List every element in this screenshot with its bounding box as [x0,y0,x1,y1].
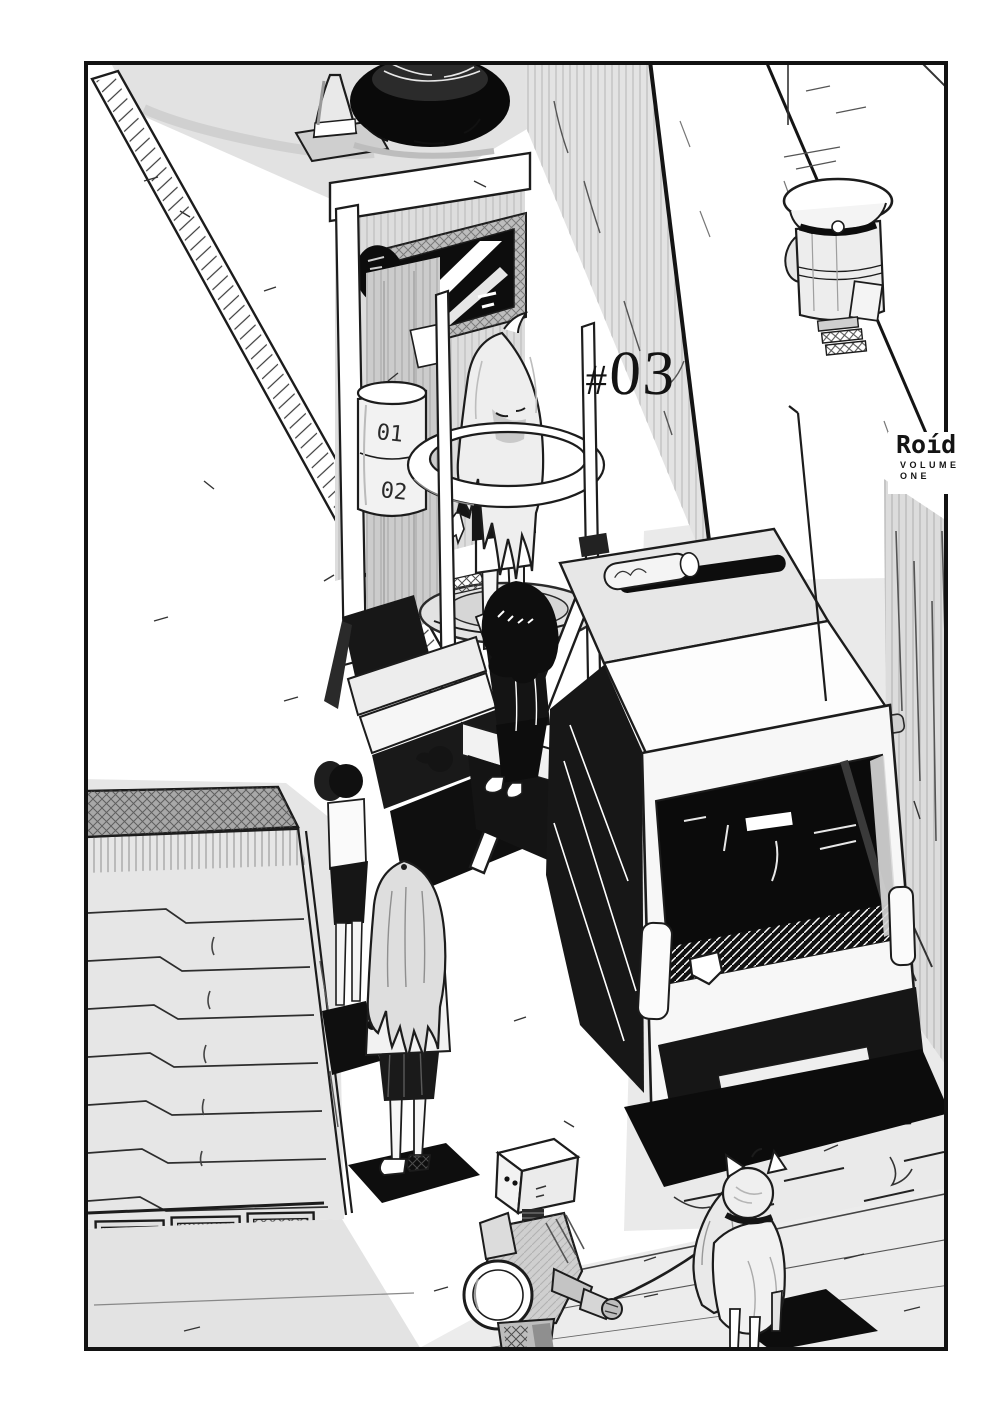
tail-light-left [638,922,673,1019]
barrel-mark-top: 01 [375,420,404,448]
manga-panel: 01 02 [84,61,948,1351]
series-logo-block: Roíd VOLUME ONE [888,432,1000,494]
tail-light-right [889,887,916,966]
chapter-number-digits: 03 [608,338,679,408]
panel-illustration: 01 02 [84,61,948,1351]
volume-word: VOLUME [900,460,1000,470]
chapter-number-hash: # [584,357,610,404]
chapter-number: #03 [584,342,678,405]
manga-page: { "page": { "chapter_number_hash": "#", … [0,0,1000,1422]
volume-number-word: ONE [900,471,1000,481]
kettle [427,746,453,772]
robot-satchel [850,281,883,321]
series-logo-title: Roíd [896,432,1000,457]
barrel-mark-bottom: 02 [379,478,408,506]
